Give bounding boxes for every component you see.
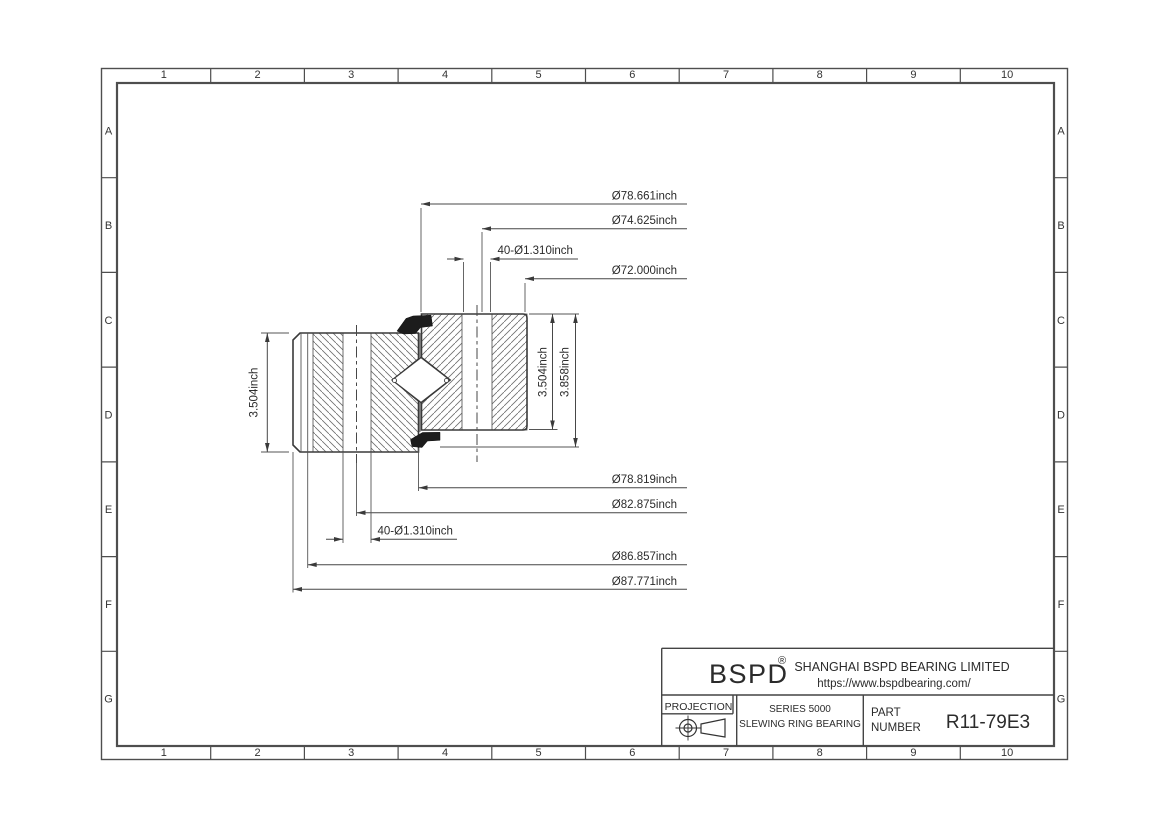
- grid-label: 1: [161, 69, 167, 81]
- company-name: SHANGHAI BSPD BEARING LIMITED: [794, 660, 1009, 674]
- grid-label: 1: [161, 747, 167, 759]
- part-number-label-line-2: NUMBER: [871, 722, 921, 734]
- drawing-canvas: 1 2 3 4 5 6 7 8 9 10 1 2 3 4 5 6 7 8 9 1…: [0, 0, 1170, 827]
- roller-axis-dot: [444, 378, 448, 382]
- grid-label: 8: [817, 69, 823, 81]
- part-number-label-line-1: PART: [871, 707, 901, 719]
- grid-label: 10: [1001, 69, 1013, 81]
- dim-label: Ø82.875inch: [612, 499, 677, 511]
- grid-label: 3: [348, 747, 354, 759]
- dim-outer-bolt-holes: 40-Ø1.310inch: [326, 452, 457, 543]
- roller-axis-dot: [392, 378, 396, 382]
- outer-ring-hatch-band: [313, 333, 343, 452]
- company-website: https://www.bspdbearing.com/: [817, 678, 971, 690]
- grid-label: D: [1057, 410, 1065, 422]
- bearing-cross-section: [293, 305, 527, 463]
- dim-outer-ring-height: 3.504inch: [249, 333, 290, 452]
- dim-label: Ø86.857inch: [612, 551, 677, 563]
- dim-label: Ø74.625inch: [612, 215, 677, 227]
- grid-label: D: [105, 410, 113, 422]
- grid-label: 8: [817, 747, 823, 759]
- grid-label: G: [1057, 694, 1066, 706]
- projection-label: PROJECTION: [665, 701, 733, 713]
- grid-label: 2: [254, 69, 260, 81]
- grid-label: 9: [910, 747, 916, 759]
- column-ticks-top: [211, 68, 961, 83]
- company-logo: BSPD: [709, 659, 789, 689]
- grid-label: A: [105, 125, 113, 137]
- dim-label: 40-Ø1.310inch: [498, 245, 573, 257]
- grid-label: 4: [442, 747, 448, 759]
- dim-label: Ø87.771inch: [612, 576, 677, 588]
- dim-label: 3.504inch: [538, 347, 550, 397]
- grid-label: A: [1057, 125, 1065, 137]
- dim-dia-outer-bolt-circle: Ø82.875inch: [357, 463, 688, 516]
- grid-label: 7: [723, 69, 729, 81]
- grid-label: 2: [254, 747, 260, 759]
- grid-label: B: [1057, 220, 1064, 232]
- grid-label: 4: [442, 69, 448, 81]
- grid-label: C: [1057, 315, 1065, 327]
- grid-label: 10: [1001, 747, 1013, 759]
- grid-label: F: [105, 599, 112, 611]
- grid-label: 6: [629, 747, 635, 759]
- grid-label: 6: [629, 69, 635, 81]
- grid-label: 5: [536, 69, 542, 81]
- dim-inner-ring-height: 3.504inch: [529, 314, 579, 430]
- grid-label: 3: [348, 69, 354, 81]
- dim-dia-bore: Ø72.000inch: [525, 265, 687, 312]
- series-line-2: SLEWING RING BEARING: [739, 719, 861, 730]
- third-angle-projection-icon: [676, 716, 726, 741]
- drawing-sheet: 1 2 3 4 5 6 7 8 9 10 1 2 3 4 5 6 7 8 9 1…: [0, 0, 1170, 827]
- dim-label: 40-Ø1.310inch: [378, 526, 453, 538]
- registered-trademark-icon: ®: [778, 655, 786, 667]
- grid-label: 7: [723, 747, 729, 759]
- title-block: BSPD ® SHANGHAI BSPD BEARING LIMITED htt…: [662, 648, 1054, 746]
- grid-label: G: [104, 694, 113, 706]
- dim-dia-inner-bolt-circle: Ø74.625inch: [482, 215, 687, 312]
- column-ticks-bottom: [211, 746, 961, 760]
- grid-label: E: [105, 504, 112, 516]
- grid-label: B: [105, 220, 112, 232]
- series-line-1: SERIES 5000: [769, 704, 831, 715]
- grid-label: C: [105, 315, 113, 327]
- dim-label: 3.858inch: [560, 347, 572, 397]
- outer-ring-section: [293, 325, 419, 463]
- grid-label: 5: [536, 747, 542, 759]
- grid-label: F: [1058, 599, 1065, 611]
- dim-label: 3.504inch: [249, 368, 261, 418]
- grid-label: 9: [910, 69, 916, 81]
- grid-label: E: [1057, 504, 1064, 516]
- outer-border: [102, 69, 1068, 760]
- dim-label: Ø78.819inch: [612, 474, 677, 486]
- inner-ring-hatch-band: [492, 314, 527, 430]
- dim-dia-outer-inner: Ø78.819inch: [419, 448, 688, 491]
- dim-label: Ø78.661inch: [612, 191, 677, 203]
- part-number-value: R11-79E3: [946, 712, 1030, 733]
- sheet-frame: 1 2 3 4 5 6 7 8 9 10 1 2 3 4 5 6 7 8 9 1…: [101, 68, 1068, 760]
- dim-label: Ø72.000inch: [612, 265, 677, 277]
